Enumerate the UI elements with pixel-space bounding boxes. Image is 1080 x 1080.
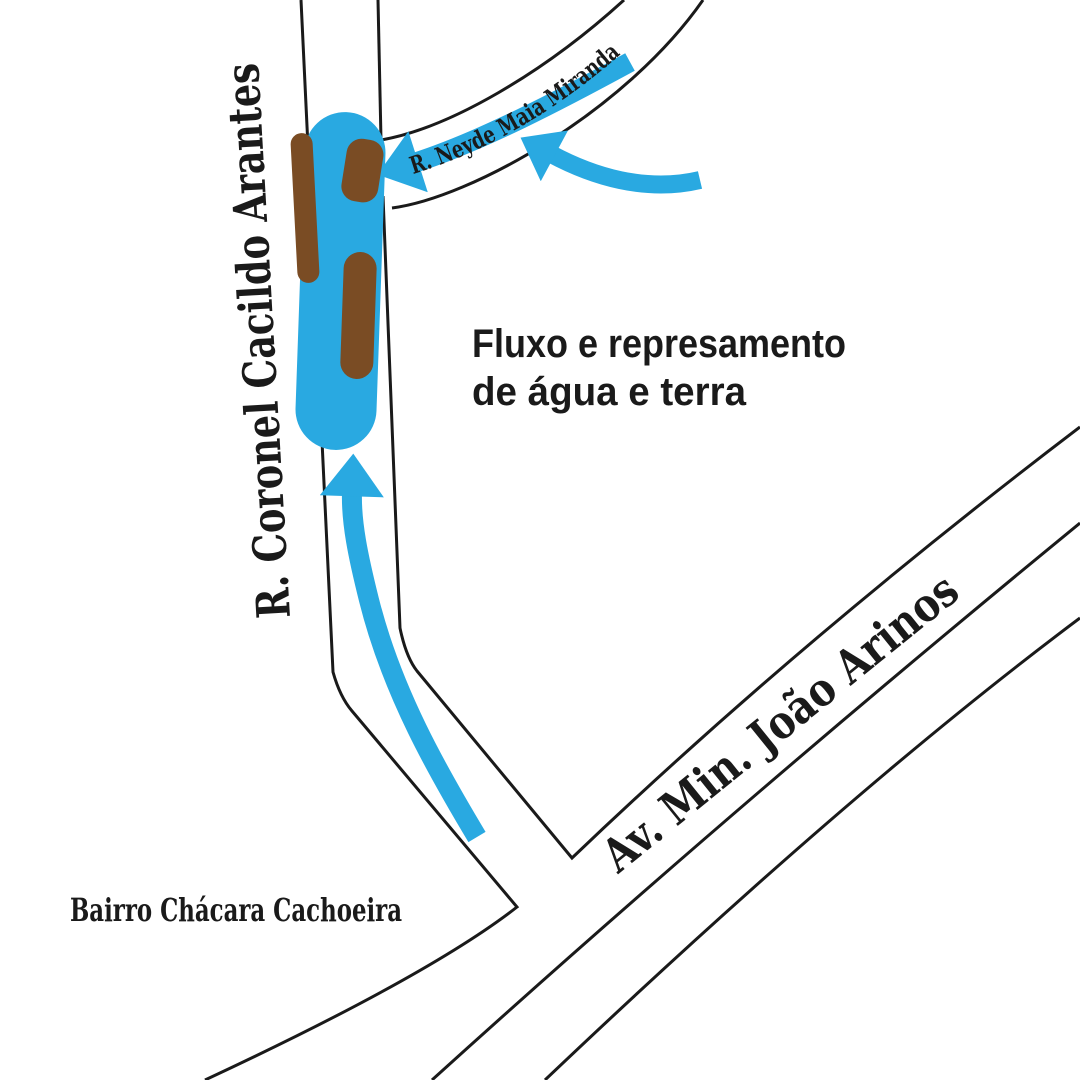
street-coronel-right-line-upper — [378, 0, 381, 140]
annotation-line1: Fluxo e represamento — [472, 322, 846, 366]
street-map-diagram: R. Coronel Cacildo Arantes R. Neyde Maia… — [0, 0, 1080, 1080]
avenue-band-bottom-line — [432, 523, 1080, 1080]
neighborhood-label-bairro-chacara-cachoeira: Bairro Chácara Cachoeira — [70, 891, 402, 929]
street-label-neyde-maia-miranda: R. Neyde Maia Miranda — [406, 37, 625, 180]
street-label-coronel-cacildo-arantes: R. Coronel Cacildo Arantes — [215, 62, 301, 620]
map-canvas: R. Coronel Cacildo Arantes R. Neyde Maia… — [0, 0, 1080, 1080]
street-label-neyde-text: R. Neyde Maia Miranda — [406, 37, 625, 180]
annotation-line2: de água e terra — [472, 370, 747, 414]
earth-deposit-middle — [340, 251, 377, 379]
flow-arrow-curved-inflow — [551, 154, 700, 185]
avenue-label-joao-arinos: Av. Min. João Arinos — [591, 563, 969, 884]
